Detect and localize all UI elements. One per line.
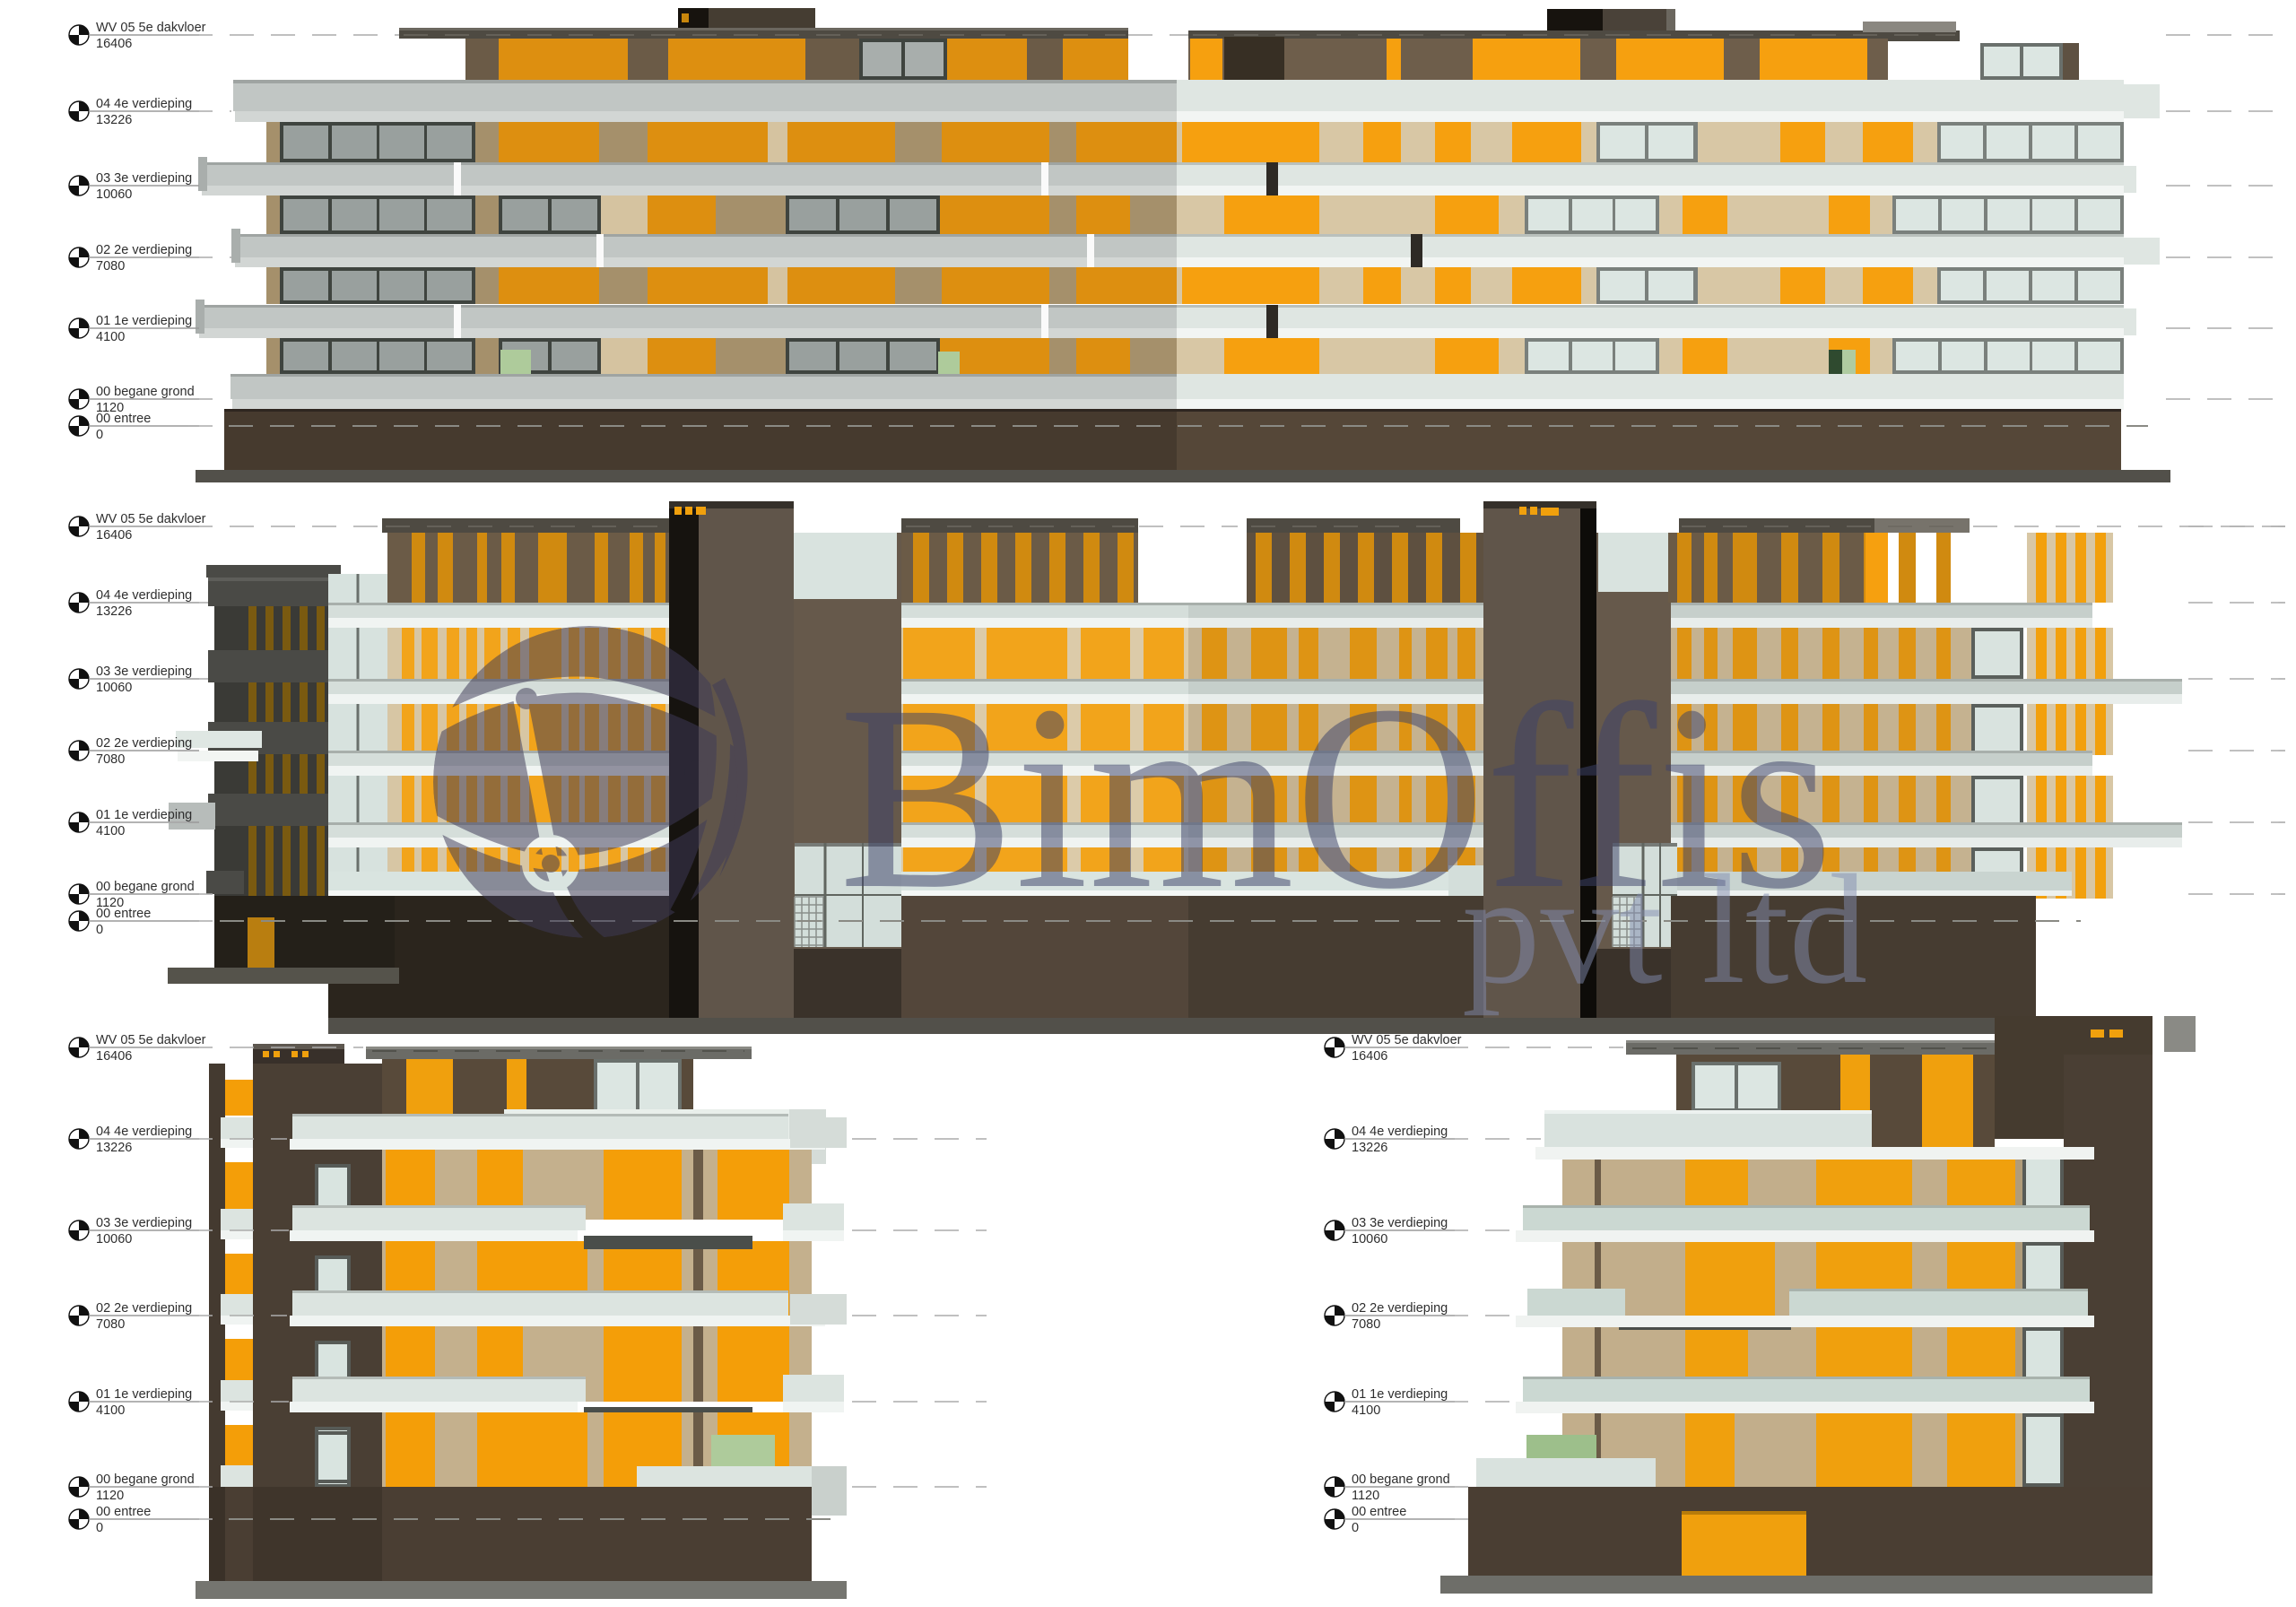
svg-text:00 entree: 00 entree — [96, 1505, 151, 1519]
svg-text:4100: 4100 — [1352, 1403, 1380, 1418]
svg-text:04 4e verdieping: 04 4e verdieping — [96, 1125, 192, 1139]
svg-text:13226: 13226 — [96, 113, 132, 127]
svg-text:10060: 10060 — [1352, 1232, 1387, 1247]
svg-text:00 entree: 00 entree — [1352, 1505, 1406, 1519]
svg-text:WV 05 5e dakvloer: WV 05 5e dakvloer — [96, 1033, 206, 1047]
svg-text:7080: 7080 — [96, 1317, 125, 1332]
svg-text:0: 0 — [96, 1521, 103, 1535]
svg-text:13226: 13226 — [96, 604, 132, 619]
svg-text:0: 0 — [96, 428, 103, 442]
svg-text:4100: 4100 — [96, 1403, 125, 1418]
svg-text:WV 05 5e dakvloer: WV 05 5e dakvloer — [96, 512, 206, 526]
svg-text:03 3e verdieping: 03 3e verdieping — [96, 665, 192, 679]
svg-text:00 entree: 00 entree — [96, 907, 151, 921]
svg-text:04 4e verdieping: 04 4e verdieping — [1352, 1125, 1448, 1139]
svg-text:13226: 13226 — [1352, 1141, 1387, 1155]
svg-text:pvt ltd: pvt ltd — [1462, 842, 1867, 1016]
svg-text:0: 0 — [1352, 1521, 1359, 1535]
svg-text:02 2e verdieping: 02 2e verdieping — [96, 736, 192, 751]
svg-text:16406: 16406 — [96, 1049, 132, 1064]
svg-text:4100: 4100 — [96, 330, 125, 344]
svg-text:00 begane grond: 00 begane grond — [96, 385, 195, 399]
svg-text:03 3e verdieping: 03 3e verdieping — [1352, 1216, 1448, 1230]
svg-text:13226: 13226 — [96, 1141, 132, 1155]
svg-text:00 begane grond: 00 begane grond — [96, 880, 195, 894]
svg-text:04 4e verdieping: 04 4e verdieping — [96, 97, 192, 111]
svg-text:01 1e verdieping: 01 1e verdieping — [96, 314, 192, 328]
svg-text:4100: 4100 — [96, 824, 125, 838]
svg-text:7080: 7080 — [96, 752, 125, 767]
svg-text:1120: 1120 — [1352, 1489, 1379, 1503]
svg-text:00 entree: 00 entree — [96, 412, 151, 426]
svg-text:02 2e verdieping: 02 2e verdieping — [1352, 1301, 1448, 1316]
svg-text:WV 05 5e dakvloer: WV 05 5e dakvloer — [96, 21, 206, 35]
svg-text:7080: 7080 — [96, 259, 125, 274]
svg-text:02 2e verdieping: 02 2e verdieping — [96, 1301, 192, 1316]
svg-text:1120: 1120 — [96, 1489, 124, 1503]
svg-text:16406: 16406 — [1352, 1049, 1387, 1064]
svg-text:01 1e verdieping: 01 1e verdieping — [1352, 1387, 1448, 1402]
svg-text:16406: 16406 — [96, 37, 132, 51]
svg-text:0: 0 — [96, 923, 103, 937]
svg-text:03 3e verdieping: 03 3e verdieping — [96, 1216, 192, 1230]
svg-text:00 begane grond: 00 begane grond — [1352, 1472, 1450, 1487]
svg-text:10060: 10060 — [96, 681, 132, 695]
svg-text:7080: 7080 — [1352, 1317, 1380, 1332]
svg-text:10060: 10060 — [96, 1232, 132, 1247]
svg-text:04 4e verdieping: 04 4e verdieping — [96, 588, 192, 603]
svg-text:03 3e verdieping: 03 3e verdieping — [96, 171, 192, 186]
svg-text:01 1e verdieping: 01 1e verdieping — [96, 808, 192, 822]
svg-text:02 2e verdieping: 02 2e verdieping — [96, 243, 192, 257]
svg-text:WV 05 5e dakvloer: WV 05 5e dakvloer — [1352, 1033, 1462, 1047]
svg-text:10060: 10060 — [96, 187, 132, 202]
svg-text:00 begane grond: 00 begane grond — [96, 1472, 195, 1487]
svg-text:16406: 16406 — [96, 528, 132, 543]
svg-text:01 1e verdieping: 01 1e verdieping — [96, 1387, 192, 1402]
